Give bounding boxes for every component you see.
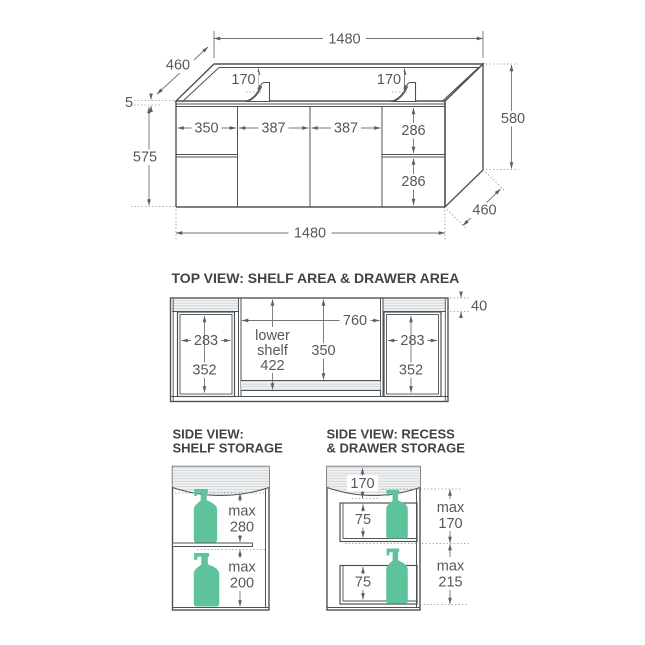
svg-text:max: max	[437, 500, 465, 516]
top-view-title: TOP VIEW: SHELF AREA & DRAWER AREA	[172, 270, 460, 286]
side-shelf-title-line1: SIDE VIEW:	[173, 427, 244, 442]
dim-lower-shelf: lower shelf 422	[247, 300, 298, 390]
side-shelf-title-line2: SHELF STORAGE	[173, 441, 284, 456]
svg-text:286: 286	[401, 174, 425, 190]
dim-center-depth: 350	[309, 300, 339, 380]
svg-text:422: 422	[260, 358, 284, 374]
dim-left-drawer-depth: 352	[190, 316, 220, 393]
svg-text:350: 350	[311, 343, 335, 359]
svg-text:352: 352	[399, 363, 423, 379]
dim-depth-bottom: 460	[447, 172, 504, 229]
svg-text:40: 40	[471, 299, 487, 315]
dim-drawer-bottom-height: 286	[399, 159, 429, 206]
svg-text:200: 200	[230, 576, 254, 592]
bottle-icon	[386, 490, 408, 538]
dim-max-lower: max 215	[434, 544, 468, 604]
lower-shelf-strip	[241, 381, 381, 391]
shelf	[173, 543, 253, 547]
svg-text:shelf: shelf	[257, 343, 289, 359]
bottle-icon	[194, 553, 219, 607]
cabinet-side-panel	[445, 64, 483, 207]
vanity-technical-drawing: 1480 460 170 170 5	[0, 0, 645, 645]
cabinet-front	[176, 101, 445, 207]
dim-drawer-top-height: 286	[399, 108, 429, 153]
svg-text:580: 580	[501, 111, 525, 127]
svg-text:170: 170	[438, 516, 462, 532]
svg-text:283: 283	[194, 333, 218, 349]
left-drawer-box	[178, 312, 235, 397]
dim-drawer1-inner: 75	[348, 505, 378, 538]
side-drawer-title-line2: & DRAWER STORAGE	[327, 441, 466, 456]
svg-text:215: 215	[438, 575, 462, 591]
dim-right-drawer-width: 283	[388, 333, 437, 349]
svg-text:max: max	[228, 504, 256, 520]
dim-tap-right: 170	[374, 69, 407, 93]
benchtop-surface	[176, 64, 483, 101]
svg-text:75: 75	[355, 512, 371, 528]
top-view: TOP VIEW: SHELF AREA & DRAWER AREA	[171, 270, 488, 402]
svg-text:5: 5	[125, 95, 133, 111]
dim-width-bottom: 1480	[176, 210, 445, 242]
svg-text:350: 350	[194, 121, 218, 137]
dim-top-rail: 40	[450, 292, 487, 319]
dim-left-drawer-width: 283	[182, 333, 231, 349]
left-rail-hatch	[172, 300, 239, 312]
dim-height-front: 575	[130, 107, 177, 207]
svg-text:170: 170	[231, 72, 255, 88]
svg-text:280: 280	[230, 520, 254, 536]
dim-tap-left: 170	[229, 69, 262, 93]
svg-text:352: 352	[192, 363, 216, 379]
right-rail-hatch	[383, 300, 446, 312]
vanity-technical-drawing-page: 1480 460 170 170 5	[0, 0, 645, 645]
benchtop-inner-rim	[182, 68, 479, 103]
svg-text:170: 170	[377, 72, 401, 88]
svg-text:170: 170	[350, 476, 374, 492]
dim-bench-thickness: 5	[125, 94, 176, 112]
svg-text:283: 283	[400, 333, 424, 349]
svg-text:387: 387	[261, 121, 285, 137]
dim-drawer2-inner: 75	[348, 567, 378, 600]
dim-right-drawer-depth: 352	[396, 316, 426, 393]
dim-door3-width: 387	[312, 121, 381, 137]
svg-text:1480: 1480	[328, 32, 360, 48]
dim-door1-width: 350	[178, 121, 237, 137]
dim-max-lower: max 200	[225, 550, 259, 607]
dim-center-width: 760	[242, 313, 380, 329]
svg-text:286: 286	[401, 123, 425, 139]
svg-text:387: 387	[334, 121, 358, 137]
side-drawer-title-line1: SIDE VIEW: RECESS	[327, 427, 456, 442]
svg-text:max: max	[437, 559, 465, 575]
svg-text:460: 460	[166, 58, 190, 74]
dim-width-top: 1480	[214, 31, 483, 58]
side-view-shelf: SIDE VIEW: SHELF STORAGE max 280 max 200	[173, 427, 284, 611]
isometric-view: 1480 460 170 170 5	[125, 31, 529, 242]
svg-text:75: 75	[355, 575, 371, 591]
svg-text:1480: 1480	[294, 226, 326, 242]
right-drawer-box	[384, 312, 441, 397]
dim-height-back: 580	[486, 64, 529, 170]
dim-door2-width: 387	[239, 121, 309, 137]
svg-text:lower: lower	[255, 328, 290, 344]
bottle-icon	[194, 489, 217, 543]
svg-text:760: 760	[343, 313, 367, 329]
side-view-drawer: SIDE VIEW: RECESS & DRAWER STORAGE	[327, 427, 470, 611]
svg-text:max: max	[228, 560, 256, 576]
svg-text:460: 460	[472, 203, 496, 219]
dim-max-upper: max 170	[434, 490, 468, 544]
bottle-icon	[386, 549, 408, 604]
dim-depth-top: 460	[157, 47, 208, 94]
dim-max-upper: max 280	[225, 494, 259, 543]
svg-text:575: 575	[133, 150, 157, 166]
